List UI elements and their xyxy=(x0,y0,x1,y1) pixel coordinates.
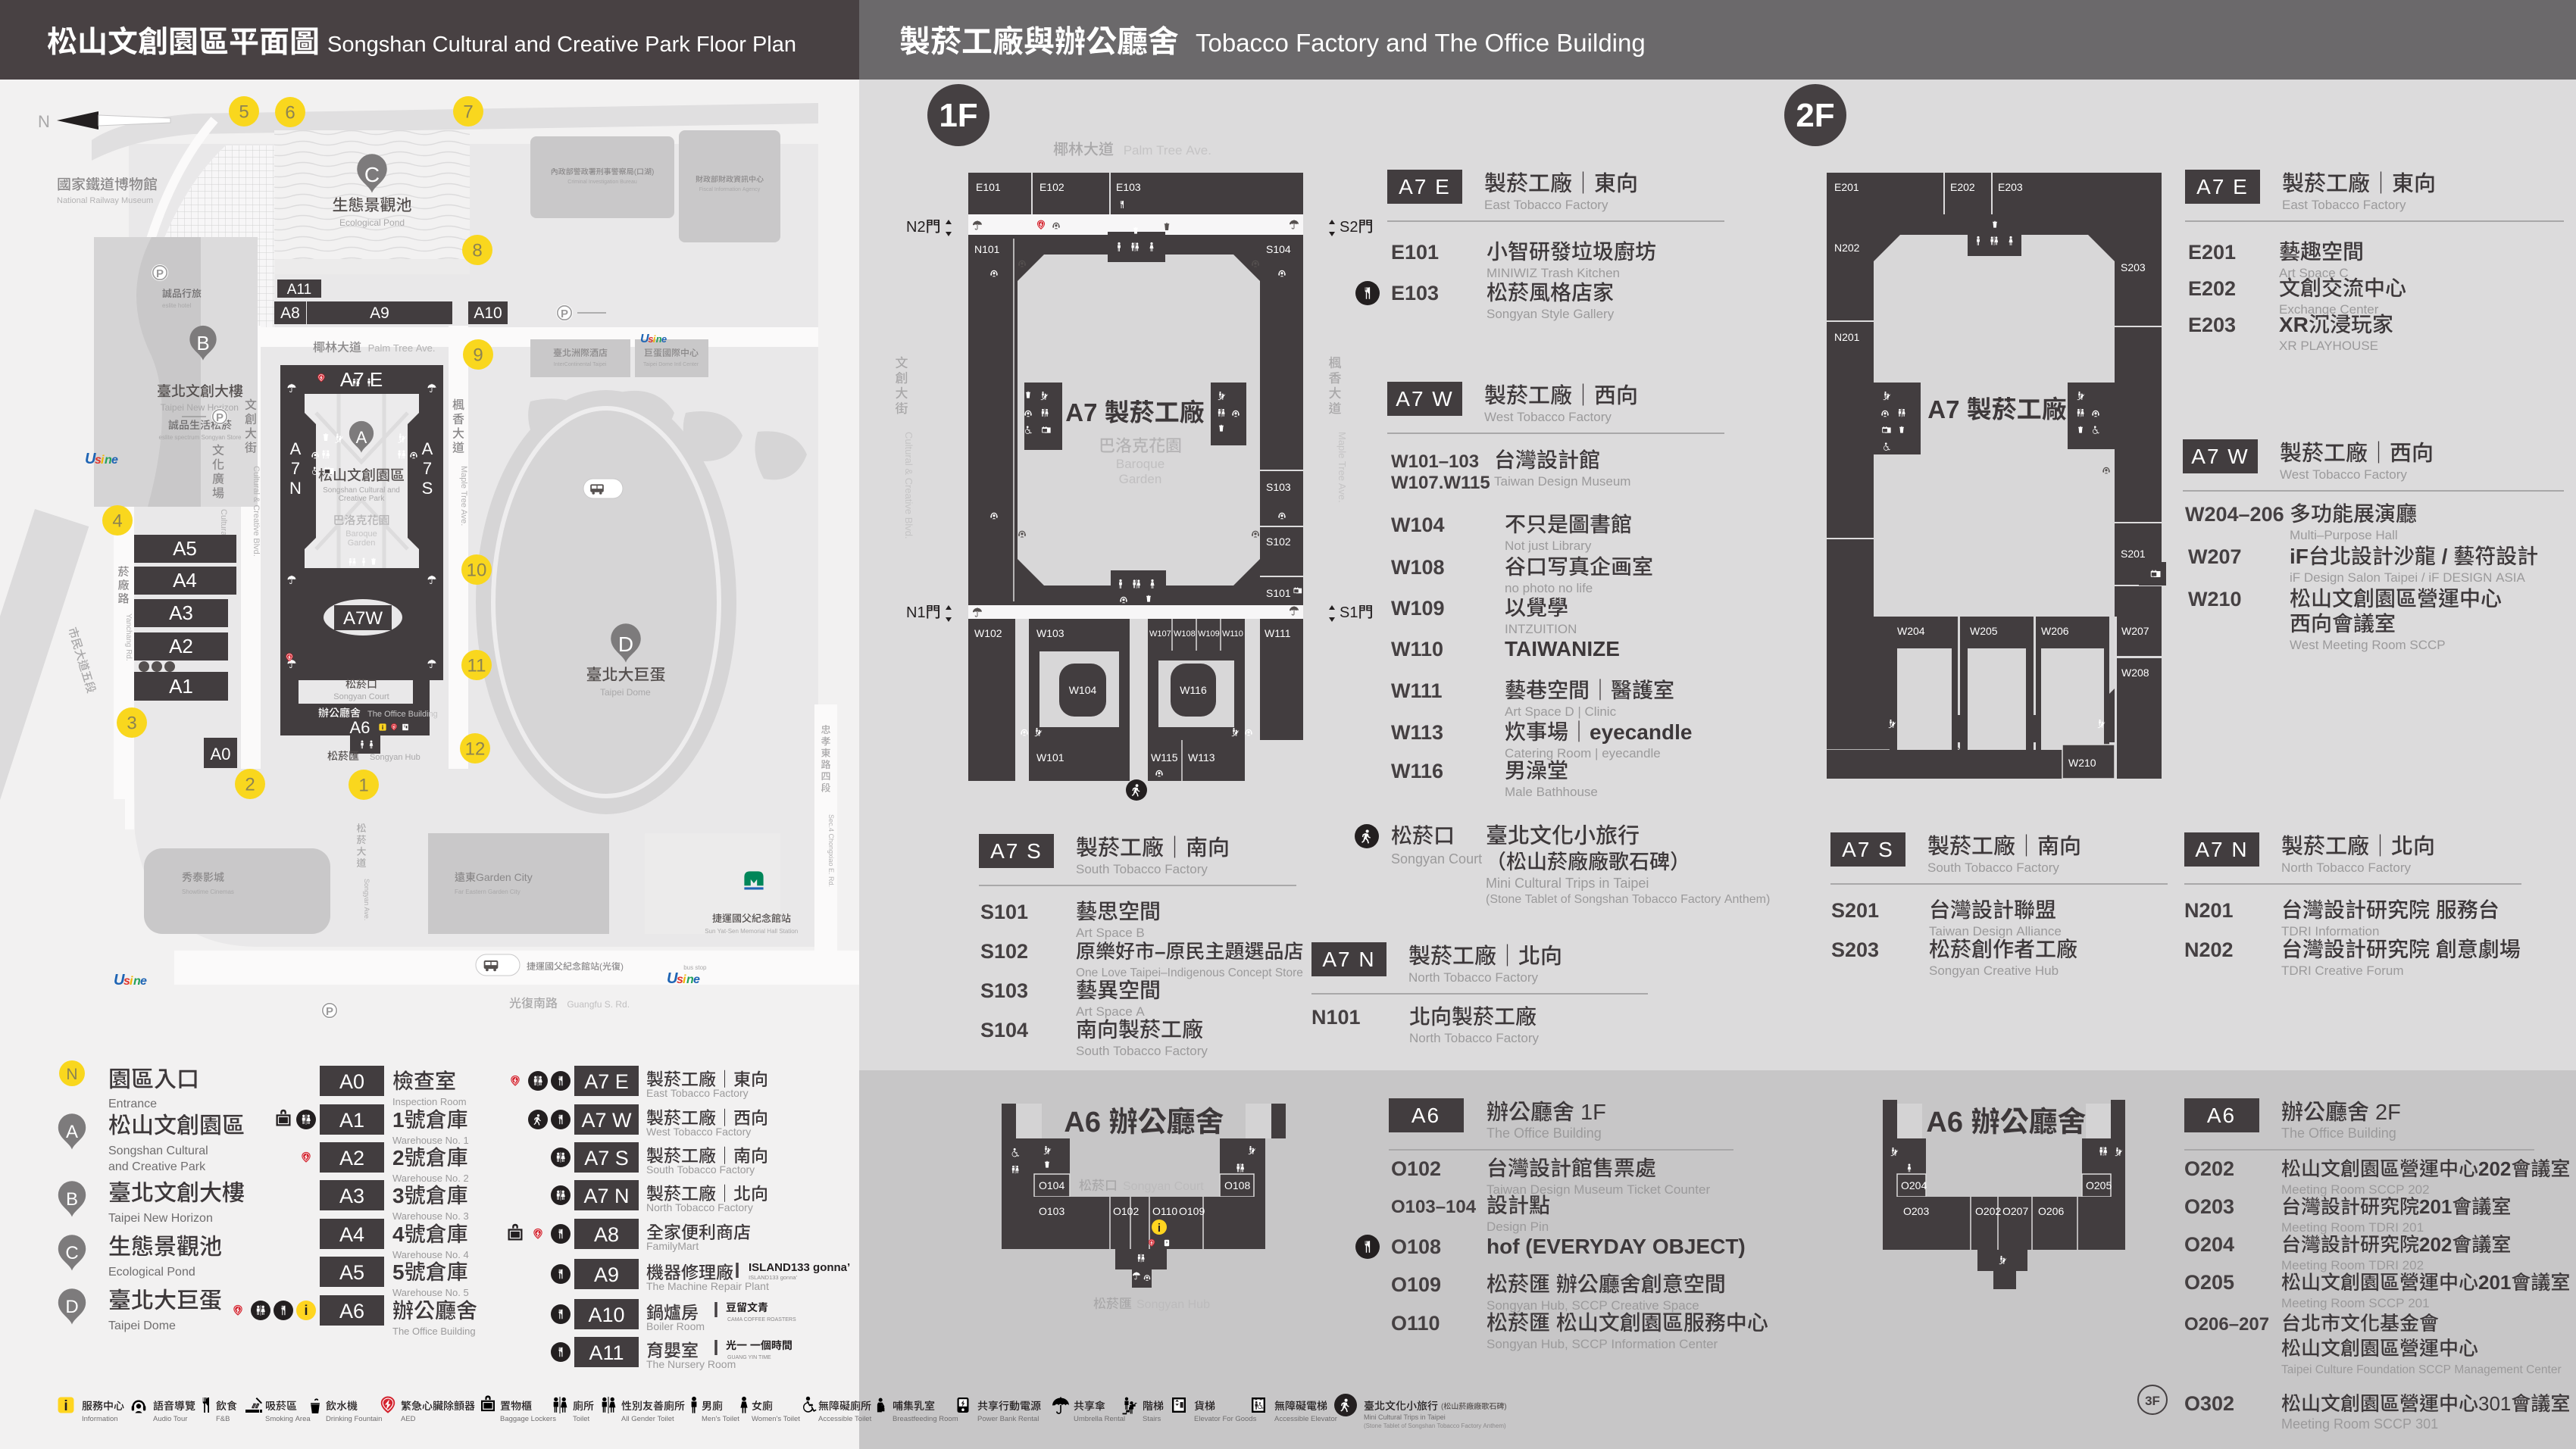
svg-text:Women's Toilet: Women's Toilet xyxy=(752,1415,800,1423)
svg-text:S102: S102 xyxy=(980,940,1028,963)
svg-text:B: B xyxy=(196,332,209,354)
svg-text:7: 7 xyxy=(291,459,300,478)
svg-text:Taipei New Horizon: Taipei New Horizon xyxy=(108,1212,213,1225)
svg-text:N201: N201 xyxy=(1834,331,1860,343)
svg-text:2: 2 xyxy=(392,1146,405,1170)
svg-text:9: 9 xyxy=(473,345,483,366)
svg-text:North Tobacco Factory: North Tobacco Factory xyxy=(1408,970,1539,985)
svg-text:Not just Library: Not just Library xyxy=(1505,539,1592,553)
svg-text:A11: A11 xyxy=(287,282,311,298)
svg-text:South Tobacco Factory: South Tobacco Factory xyxy=(646,1163,755,1176)
svg-text:E202: E202 xyxy=(2188,277,2236,300)
svg-text:E203: E203 xyxy=(2188,314,2236,336)
svg-text:A6: A6 xyxy=(1411,1104,1440,1127)
svg-text:West Tobacco Factory: West Tobacco Factory xyxy=(1484,410,1612,424)
svg-text:W111: W111 xyxy=(1265,627,1291,639)
svg-text:MINIWIZ Trash Kitchen: MINIWIZ Trash Kitchen xyxy=(1487,266,1620,280)
svg-text:7: 7 xyxy=(463,102,473,123)
svg-text:C: C xyxy=(364,163,380,186)
svg-text:Art Space B: Art Space B xyxy=(1076,926,1145,940)
svg-text:A5: A5 xyxy=(173,537,197,560)
svg-text:B: B xyxy=(66,1189,78,1210)
svg-text:Taipei Dome: Taipei Dome xyxy=(108,1319,176,1332)
svg-text:A7 S: A7 S xyxy=(1842,838,1894,861)
svg-text:A4: A4 xyxy=(339,1223,364,1246)
svg-text:FamilyMart: FamilyMart xyxy=(646,1240,699,1252)
svg-text:Songyan Ave.: Songyan Ave. xyxy=(363,879,370,920)
svg-text:A10: A10 xyxy=(588,1304,624,1326)
svg-text:3: 3 xyxy=(392,1184,405,1207)
svg-text:E202: E202 xyxy=(1950,181,1975,193)
svg-text:North Tobacco Factory: North Tobacco Factory xyxy=(2281,860,2412,875)
svg-text:Songshan Cultural and Creative: Songshan Cultural and Creative Park Floo… xyxy=(327,33,796,57)
svg-text:Meeting Room SCCP 301: Meeting Room SCCP 301 xyxy=(2281,1416,2438,1432)
svg-text:W104: W104 xyxy=(1391,514,1445,536)
svg-text:W101–103: W101–103 xyxy=(1391,451,1479,472)
svg-text:): ) xyxy=(621,961,624,972)
svg-text:201: 201 xyxy=(2478,1271,2511,1294)
svg-text:E203: E203 xyxy=(1998,181,2023,193)
svg-text:(: ( xyxy=(599,961,602,972)
svg-text:Design Pin: Design Pin xyxy=(1487,1219,1549,1234)
svg-text:11: 11 xyxy=(467,656,486,676)
svg-text:O110: O110 xyxy=(1152,1205,1177,1217)
svg-text:Warehouse No. 2: Warehouse No. 2 xyxy=(392,1173,469,1184)
svg-text:Fiscal Information Agency: Fiscal Information Agency xyxy=(699,187,761,192)
svg-text:Far Eastern Garden City: Far Eastern Garden City xyxy=(455,888,521,895)
svg-text:Songyan Court: Songyan Court xyxy=(1123,1180,1204,1193)
svg-text:The Office Building: The Office Building xyxy=(2281,1126,2396,1141)
svg-text:O202: O202 xyxy=(1975,1205,2001,1217)
svg-text:S101: S101 xyxy=(1266,587,1291,599)
svg-text:Multi–Purpose Hall: Multi–Purpose Hall xyxy=(2290,528,2398,542)
svg-text:Guangfu S. Rd.: Guangfu S. Rd. xyxy=(564,999,630,1010)
svg-text:Garden City: Garden City xyxy=(476,871,533,883)
svg-text:C: C xyxy=(65,1243,78,1263)
svg-text:A7W: A7W xyxy=(343,608,383,629)
svg-text:O302: O302 xyxy=(2184,1392,2234,1415)
svg-text:N: N xyxy=(38,112,50,131)
svg-text:4: 4 xyxy=(112,511,122,532)
svg-text:Sun Yat-Sen Memorial Hall Stat: Sun Yat-Sen Memorial Hall Station xyxy=(705,928,798,935)
svg-text:Taiwan Design Museum: Taiwan Design Museum xyxy=(1494,474,1630,489)
svg-text:5: 5 xyxy=(239,102,249,123)
svg-text:A7 W: A7 W xyxy=(1396,387,1453,411)
svg-text:InterContinental Taipei: InterContinental Taipei xyxy=(554,362,607,367)
svg-text:Mini Cultural Trips in Taipei: Mini Cultural Trips in Taipei xyxy=(1486,876,1649,891)
svg-text:A7: A7 xyxy=(1927,395,1966,423)
svg-text:Showtime Cinemas: Showtime Cinemas xyxy=(182,888,234,895)
svg-text:Taipei Dome: Taipei Dome xyxy=(600,687,651,698)
svg-text:A: A xyxy=(290,439,302,458)
svg-text:W101: W101 xyxy=(1036,751,1064,764)
svg-text:S104: S104 xyxy=(1266,243,1291,255)
svg-text:Garden: Garden xyxy=(1119,472,1162,486)
svg-text:A0: A0 xyxy=(211,745,231,764)
svg-text:Stairs: Stairs xyxy=(1143,1415,1161,1423)
svg-text:5: 5 xyxy=(392,1260,405,1284)
svg-text:S104: S104 xyxy=(980,1019,1028,1041)
svg-text:Taipei New Horizon: Taipei New Horizon xyxy=(161,402,239,413)
svg-text:1: 1 xyxy=(392,1108,405,1132)
svg-text:O205: O205 xyxy=(2086,1179,2112,1191)
svg-text:Cultural & Creative Blvd.: Cultural & Creative Blvd. xyxy=(252,466,261,557)
svg-text:CAMA COFFEE ROASTERS: CAMA COFFEE ROASTERS xyxy=(727,1317,796,1323)
svg-text:Songyan Hub, SCCP Creative Spa: Songyan Hub, SCCP Creative Space xyxy=(1487,1298,1699,1313)
svg-text:E201: E201 xyxy=(2188,241,2236,264)
svg-text:E201: E201 xyxy=(1834,181,1859,193)
svg-text:12: 12 xyxy=(465,739,486,760)
svg-text:S201: S201 xyxy=(2121,548,2146,560)
svg-text:W103: W103 xyxy=(1036,627,1064,639)
svg-text:3: 3 xyxy=(127,714,136,734)
svg-text:O207: O207 xyxy=(2002,1205,2028,1217)
svg-text:W210: W210 xyxy=(2068,757,2096,769)
svg-text:S201: S201 xyxy=(1831,899,1879,922)
svg-text:W116: W116 xyxy=(1180,684,1207,696)
svg-text:202: 202 xyxy=(2478,1157,2511,1180)
svg-text:4: 4 xyxy=(392,1223,405,1246)
svg-text:W204–206: W204–206 xyxy=(2185,503,2284,526)
svg-text:W110: W110 xyxy=(1222,629,1243,639)
svg-text:ISLAND133 gonna’: ISLAND133 gonna’ xyxy=(749,1261,850,1274)
svg-text:Baroque: Baroque xyxy=(1116,457,1165,471)
svg-text:W107: W107 xyxy=(1149,629,1171,639)
svg-text:A7 E: A7 E xyxy=(2196,175,2249,198)
svg-text:7: 7 xyxy=(423,459,432,478)
svg-text:The Office Building: The Office Building xyxy=(392,1326,476,1337)
svg-text:W206: W206 xyxy=(2041,625,2069,637)
svg-text:Songshan Cultural: Songshan Cultural xyxy=(108,1145,208,1157)
svg-text:S: S xyxy=(422,479,433,498)
svg-text:A2: A2 xyxy=(339,1147,364,1170)
svg-text:A7 S: A7 S xyxy=(990,839,1043,863)
svg-text:W205: W205 xyxy=(1970,625,1998,637)
svg-text:W113: W113 xyxy=(1391,721,1443,744)
svg-text:A7 W: A7 W xyxy=(2191,445,2249,468)
svg-text:A7: A7 xyxy=(1065,398,1104,426)
svg-text:Songshan Cultural and: Songshan Cultural and xyxy=(323,486,400,495)
svg-text:D: D xyxy=(618,632,633,656)
svg-text:Power Bank Rental: Power Bank Rental xyxy=(977,1415,1039,1423)
svg-text:A7 E: A7 E xyxy=(1399,175,1451,198)
svg-text:/: / xyxy=(2436,545,2453,568)
svg-text:Ecological Pond: Ecological Pond xyxy=(339,217,405,228)
svg-text:Male Bathhouse: Male Bathhouse xyxy=(1505,785,1598,799)
svg-text:2F: 2F xyxy=(2369,1101,2401,1125)
svg-text:no photo no life: no photo no life xyxy=(1505,581,1593,595)
svg-text:O108: O108 xyxy=(1391,1235,1441,1258)
svg-text:O102: O102 xyxy=(1113,1205,1139,1217)
svg-text:O205: O205 xyxy=(2184,1271,2234,1294)
svg-text:N202: N202 xyxy=(2184,938,2234,961)
svg-text:W204: W204 xyxy=(1897,625,1925,637)
svg-text:Inspection Room: Inspection Room xyxy=(392,1096,467,1107)
svg-text:S203: S203 xyxy=(2121,261,2146,273)
svg-text:N2: N2 xyxy=(906,219,926,236)
svg-text:O204: O204 xyxy=(1901,1179,1927,1191)
svg-text:XR PLAYHOUSE: XR PLAYHOUSE xyxy=(2279,339,2378,353)
svg-text:eslite spectrum Songyan Store: eslite spectrum Songyan Store xyxy=(159,434,242,441)
svg-text:Information: Information xyxy=(82,1415,118,1423)
svg-text:Palm Tree Ave.: Palm Tree Ave. xyxy=(1120,143,1211,158)
svg-text:A: A xyxy=(422,439,433,458)
svg-text:N101: N101 xyxy=(974,243,1000,255)
svg-text:E101: E101 xyxy=(1391,241,1439,264)
svg-text:S1: S1 xyxy=(1340,604,1358,621)
svg-text:A7 E: A7 E xyxy=(584,1070,629,1093)
svg-text:S203: S203 xyxy=(1831,938,1879,961)
svg-text:W207: W207 xyxy=(2188,545,2242,568)
svg-text:One Love Taipei–Indigenous Con: One Love Taipei–Indigenous Concept Store xyxy=(1076,967,1303,979)
svg-text:e: e xyxy=(661,333,667,345)
svg-text:W111: W111 xyxy=(1391,679,1443,702)
svg-text:West Meeting Room SCCP: West Meeting Room SCCP xyxy=(2290,638,2446,652)
svg-text:Entrance: Entrance xyxy=(108,1098,157,1110)
svg-text:Ecological Pond: Ecological Pond xyxy=(108,1266,195,1279)
svg-text:South Tobacco Factory: South Tobacco Factory xyxy=(1076,1044,1208,1058)
svg-text:e: e xyxy=(111,454,118,467)
svg-text:W107.W115: W107.W115 xyxy=(1391,473,1490,493)
svg-text:Mini Cultural Trips in Taipei: Mini Cultural Trips in Taipei xyxy=(1364,1413,1446,1421)
svg-text:O109: O109 xyxy=(1179,1205,1205,1217)
svg-text:O103: O103 xyxy=(1039,1205,1064,1217)
svg-text:Art Space D | Clinic: Art Space D | Clinic xyxy=(1505,704,1617,719)
svg-text:and Creative Park: and Creative Park xyxy=(108,1160,206,1173)
svg-text:Boiler Room: Boiler Room xyxy=(646,1320,705,1332)
svg-text:Songyan Hub: Songyan Hub xyxy=(1136,1298,1210,1311)
svg-text:2F: 2F xyxy=(1796,97,1834,134)
svg-text:A7 N: A7 N xyxy=(1322,948,1375,971)
svg-text:South Tobacco Factory: South Tobacco Factory xyxy=(1076,862,1208,876)
svg-text:E102: E102 xyxy=(1039,181,1064,193)
svg-text:10: 10 xyxy=(467,561,487,581)
svg-text:A7 N: A7 N xyxy=(583,1185,629,1207)
svg-text:A8: A8 xyxy=(280,304,300,322)
svg-text:A1: A1 xyxy=(339,1109,364,1132)
svg-text:West Tobacco Factory: West Tobacco Factory xyxy=(646,1126,751,1138)
svg-text:Taipei Culture Foundation SCCP: Taipei Culture Foundation SCCP Managemen… xyxy=(2281,1363,2562,1376)
svg-text:O203: O203 xyxy=(1903,1205,1929,1217)
svg-text:(Stone Tablet of Songshan Toba: (Stone Tablet of Songshan Tobacco Factor… xyxy=(1486,893,1770,906)
svg-text:A: A xyxy=(356,428,367,447)
svg-text:A9: A9 xyxy=(370,304,389,322)
svg-text:(Stone Tablet of Songshan Toba: (Stone Tablet of Songshan Tobacco Factor… xyxy=(1364,1422,1506,1429)
svg-text:–: – xyxy=(1155,940,1165,963)
svg-text:O109: O109 xyxy=(1391,1273,1441,1296)
svg-text:A1: A1 xyxy=(169,675,193,698)
svg-text:XR: XR xyxy=(2279,313,2309,336)
svg-text:North Tobacco Factory: North Tobacco Factory xyxy=(1409,1031,1540,1045)
svg-text:i: i xyxy=(304,1303,308,1318)
svg-text:A6: A6 xyxy=(2207,1104,2236,1127)
svg-text:Men's Toilet: Men's Toilet xyxy=(702,1415,739,1423)
svg-text:F&B: F&B xyxy=(216,1415,230,1423)
svg-text:W115: W115 xyxy=(1151,751,1178,764)
svg-text:A3: A3 xyxy=(169,601,193,624)
svg-text:1F: 1F xyxy=(939,97,977,134)
svg-text:A2: A2 xyxy=(169,635,193,657)
svg-text:National Railway Museum: National Railway Museum xyxy=(57,196,153,205)
svg-text:Baroque: Baroque xyxy=(345,529,377,539)
svg-text:TDRI Creative Forum: TDRI Creative Forum xyxy=(2281,963,2404,978)
svg-text:Songyan Creative Hub: Songyan Creative Hub xyxy=(1929,963,2059,978)
svg-text:iF: iF xyxy=(2290,545,2309,568)
svg-text:S2: S2 xyxy=(1340,219,1358,236)
svg-text:): ) xyxy=(652,168,654,176)
svg-text:E103: E103 xyxy=(1391,282,1439,304)
svg-text:A6: A6 xyxy=(339,1300,364,1323)
svg-text:S103: S103 xyxy=(1266,481,1291,493)
svg-text:Baggage Lockers: Baggage Lockers xyxy=(500,1415,556,1423)
svg-text:3F: 3F xyxy=(2145,1394,2160,1408)
svg-text:Palm Tree Ave.: Palm Tree Ave. xyxy=(365,342,435,354)
svg-text:The Office Building: The Office Building xyxy=(1487,1126,1602,1141)
svg-text:6: 6 xyxy=(285,103,295,123)
svg-text:A11: A11 xyxy=(589,1341,624,1364)
svg-text:N: N xyxy=(66,1066,77,1083)
svg-text:Taiwan Design Alliance: Taiwan Design Alliance xyxy=(1929,924,2062,938)
svg-text:East Tobacco Factory: East Tobacco Factory xyxy=(2282,198,2406,212)
svg-text:Songyan Hub, SCCP Information: Songyan Hub, SCCP Information Center xyxy=(1487,1337,1718,1351)
svg-text:North Tobacco Factory: North Tobacco Factory xyxy=(646,1201,753,1213)
svg-text:bus stop: bus stop xyxy=(682,964,707,971)
svg-text:Criminal Investigation Bureau: Criminal Investigation Bureau xyxy=(567,180,637,185)
svg-text:N: N xyxy=(289,479,302,498)
svg-text:A9: A9 xyxy=(594,1263,619,1286)
svg-text:hof (EVERYDAY OBJECT): hof (EVERYDAY OBJECT) xyxy=(1487,1235,1746,1258)
svg-text:AED: AED xyxy=(401,1415,416,1423)
svg-text:O104: O104 xyxy=(1039,1179,1064,1191)
svg-text:1: 1 xyxy=(358,776,368,796)
svg-text:202: 202 xyxy=(2419,1233,2452,1256)
svg-text:A8: A8 xyxy=(594,1223,619,1246)
svg-text:i: i xyxy=(64,1398,67,1414)
svg-text:301: 301 xyxy=(2478,1392,2511,1415)
svg-text:Yanchang Rd.: Yanchang Rd. xyxy=(124,614,133,661)
svg-text:INTZUITION: INTZUITION xyxy=(1505,622,1577,636)
svg-text:Songyan Style Gallery: Songyan Style Gallery xyxy=(1487,307,1615,321)
svg-text:N101: N101 xyxy=(1311,1006,1361,1029)
svg-text:Meeting Room SCCP 202: Meeting Room SCCP 202 xyxy=(2281,1182,2430,1197)
svg-text:E103: E103 xyxy=(1116,181,1141,193)
svg-text:Warehouse No. 3: Warehouse No. 3 xyxy=(392,1210,469,1222)
svg-text:O102: O102 xyxy=(1391,1157,1441,1180)
svg-text:e: e xyxy=(140,975,147,988)
svg-text:Accessible Elevator: Accessible Elevator xyxy=(1274,1415,1337,1423)
svg-text:W108: W108 xyxy=(1174,629,1196,639)
svg-text:N1: N1 xyxy=(906,604,926,621)
svg-text:East Tobacco Factory: East Tobacco Factory xyxy=(646,1087,749,1099)
svg-text:Elevator For Goods: Elevator For Goods xyxy=(1194,1415,1257,1423)
svg-text:Audio Tour: Audio Tour xyxy=(153,1415,187,1423)
svg-text:Catering Room | eyecandle: Catering Room | eyecandle xyxy=(1505,746,1661,760)
svg-text:A10: A10 xyxy=(474,304,502,322)
svg-text:Taiwan Design Museum Ticket Co: Taiwan Design Museum Ticket Counter xyxy=(1487,1182,1710,1197)
svg-text:Accessible Toilet: Accessible Toilet xyxy=(818,1415,872,1423)
svg-text:The Nursery Room: The Nursery Room xyxy=(646,1358,736,1370)
svg-text:Sec.4 Chongxiao E. Rd.: Sec.4 Chongxiao E. Rd. xyxy=(827,814,835,887)
svg-text:W116: W116 xyxy=(1391,760,1443,782)
svg-text:Warehouse No. 1: Warehouse No. 1 xyxy=(392,1135,469,1146)
svg-text:W113: W113 xyxy=(1188,751,1215,764)
svg-text:W207: W207 xyxy=(2121,625,2149,637)
svg-text:O206–207: O206–207 xyxy=(2184,1314,2269,1335)
svg-text:W108: W108 xyxy=(1391,556,1445,579)
svg-text:): ) xyxy=(1504,1403,1506,1411)
svg-text:Drinking Fountain: Drinking Fountain xyxy=(326,1415,382,1423)
svg-text:O202: O202 xyxy=(2184,1157,2234,1180)
svg-text:GUANG YIN TIME: GUANG YIN TIME xyxy=(727,1355,771,1360)
svg-text:A6: A6 xyxy=(1926,1107,1971,1138)
svg-text:Garden: Garden xyxy=(348,539,376,548)
svg-text:O110: O110 xyxy=(1391,1312,1440,1335)
svg-text:201: 201 xyxy=(2419,1195,2452,1218)
svg-text:i: i xyxy=(1158,1222,1161,1235)
svg-text:A7 W: A7 W xyxy=(581,1109,632,1132)
svg-text:Songyan Court: Songyan Court xyxy=(1391,851,1482,867)
svg-text:8: 8 xyxy=(472,241,482,261)
svg-text:Toilet: Toilet xyxy=(573,1415,590,1423)
svg-text:All Gender Toilet: All Gender Toilet xyxy=(621,1415,674,1423)
svg-text:East Tobacco Factory: East Tobacco Factory xyxy=(1484,198,1608,212)
svg-text:A7 E: A7 E xyxy=(340,368,383,391)
svg-text:Songyan Court: Songyan Court xyxy=(333,692,389,701)
svg-text:A5: A5 xyxy=(339,1261,364,1284)
svg-text:A6: A6 xyxy=(1064,1107,1108,1138)
svg-text:O204: O204 xyxy=(2184,1233,2234,1256)
svg-text:eslite hotel: eslite hotel xyxy=(162,302,191,309)
svg-text:A6: A6 xyxy=(350,718,370,737)
svg-text:Meeting Room TDRI 201: Meeting Room TDRI 201 xyxy=(2281,1220,2424,1235)
svg-text:O108: O108 xyxy=(1224,1179,1250,1191)
svg-text:W110: W110 xyxy=(1391,638,1443,660)
svg-text:W102: W102 xyxy=(974,627,1002,639)
svg-text:eyecandle: eyecandle xyxy=(1590,720,1692,744)
svg-text:A3: A3 xyxy=(339,1185,364,1207)
svg-text:Umbrella Rental: Umbrella Rental xyxy=(1074,1415,1125,1423)
svg-text:TAIWANIZE: TAIWANIZE xyxy=(1505,637,1620,660)
svg-text:A0: A0 xyxy=(339,1070,364,1093)
svg-text:D: D xyxy=(65,1297,78,1317)
svg-text:TDRI Information: TDRI Information xyxy=(2281,924,2379,938)
svg-text:W104: W104 xyxy=(1069,684,1097,696)
svg-text:iF Design Salon Taipei / iF DE: iF Design Salon Taipei / iF DESIGN ASIA xyxy=(2290,570,2526,585)
svg-text:W109: W109 xyxy=(1391,597,1445,620)
svg-text:A4: A4 xyxy=(173,569,197,592)
svg-text:Tobacco Factory and The Office: Tobacco Factory and The Office Building xyxy=(1196,29,1646,57)
svg-text:Meeting Room SCCP 201: Meeting Room SCCP 201 xyxy=(2281,1296,2430,1310)
svg-text:Cultural & Creative Blvd.: Cultural & Creative Blvd. xyxy=(903,432,914,539)
svg-text:Songyan Hub: Songyan Hub xyxy=(367,753,420,762)
svg-text:A: A xyxy=(66,1122,78,1142)
svg-text:O103–104: O103–104 xyxy=(1391,1197,1477,1217)
svg-text:Maple Tree Ave.: Maple Tree Ave. xyxy=(459,466,468,526)
svg-text:E101: E101 xyxy=(976,181,1001,193)
svg-text:N201: N201 xyxy=(2184,899,2234,922)
svg-text:Art Space A: Art Space A xyxy=(1076,1004,1145,1019)
svg-text:N202: N202 xyxy=(1834,242,1860,254)
svg-text:W210: W210 xyxy=(2188,588,2242,611)
svg-text:W109: W109 xyxy=(1198,629,1220,639)
svg-text:S102: S102 xyxy=(1266,536,1291,548)
svg-text:Breastfeeding Room: Breastfeeding Room xyxy=(893,1415,958,1423)
svg-text:A7 N: A7 N xyxy=(2195,838,2248,861)
svg-text:1F: 1F xyxy=(1574,1101,1606,1125)
svg-text:S103: S103 xyxy=(980,979,1028,1002)
svg-text:A7 S: A7 S xyxy=(584,1147,629,1170)
svg-text:The Machine Repair Plant: The Machine Repair Plant xyxy=(646,1280,769,1292)
